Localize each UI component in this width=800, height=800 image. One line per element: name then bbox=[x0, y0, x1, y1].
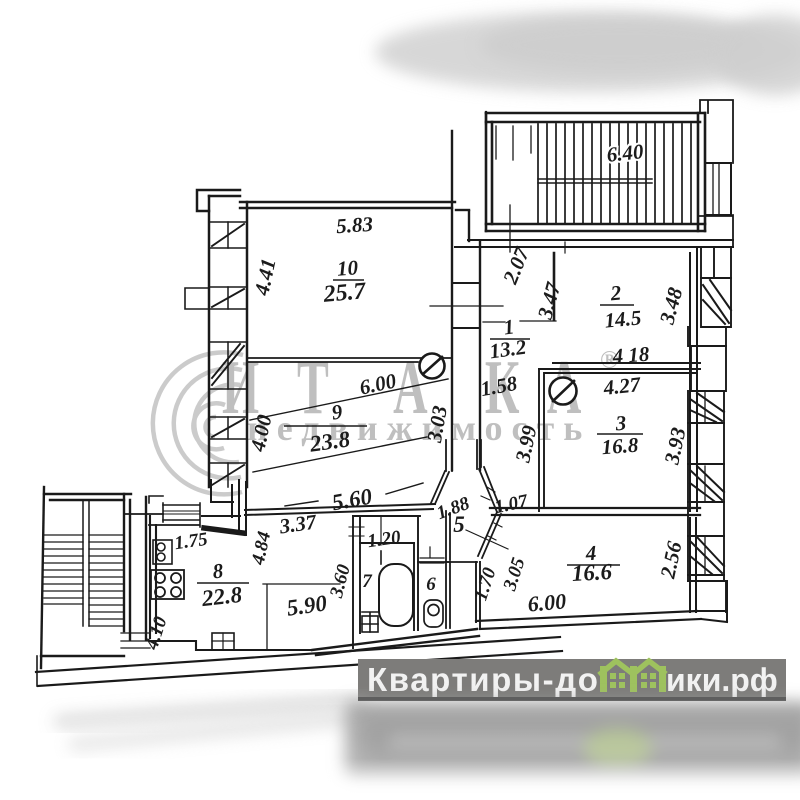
svg-text:3: 3 bbox=[614, 411, 627, 436]
svg-text:6.00: 6.00 bbox=[527, 588, 568, 616]
svg-text:14.5: 14.5 bbox=[604, 305, 643, 332]
svg-text:6.40: 6.40 bbox=[605, 139, 645, 167]
svg-text:6: 6 bbox=[426, 574, 436, 595]
svg-text:10: 10 bbox=[336, 255, 359, 280]
svg-text:4 18: 4 18 bbox=[611, 342, 651, 369]
svg-text:ики.рф: ики.рф bbox=[666, 662, 778, 698]
svg-text:Квартиры-до: Квартиры-до bbox=[367, 661, 600, 698]
svg-text:5: 5 bbox=[453, 512, 465, 537]
svg-text:7: 7 bbox=[362, 571, 373, 592]
svg-text:22.8: 22.8 bbox=[200, 582, 244, 611]
svg-text:5.83: 5.83 bbox=[335, 212, 373, 239]
svg-text:16.6: 16.6 bbox=[571, 559, 613, 586]
svg-text:16.8: 16.8 bbox=[601, 433, 640, 460]
svg-text:25.7: 25.7 bbox=[322, 278, 368, 308]
svg-text:4.27: 4.27 bbox=[601, 372, 643, 400]
